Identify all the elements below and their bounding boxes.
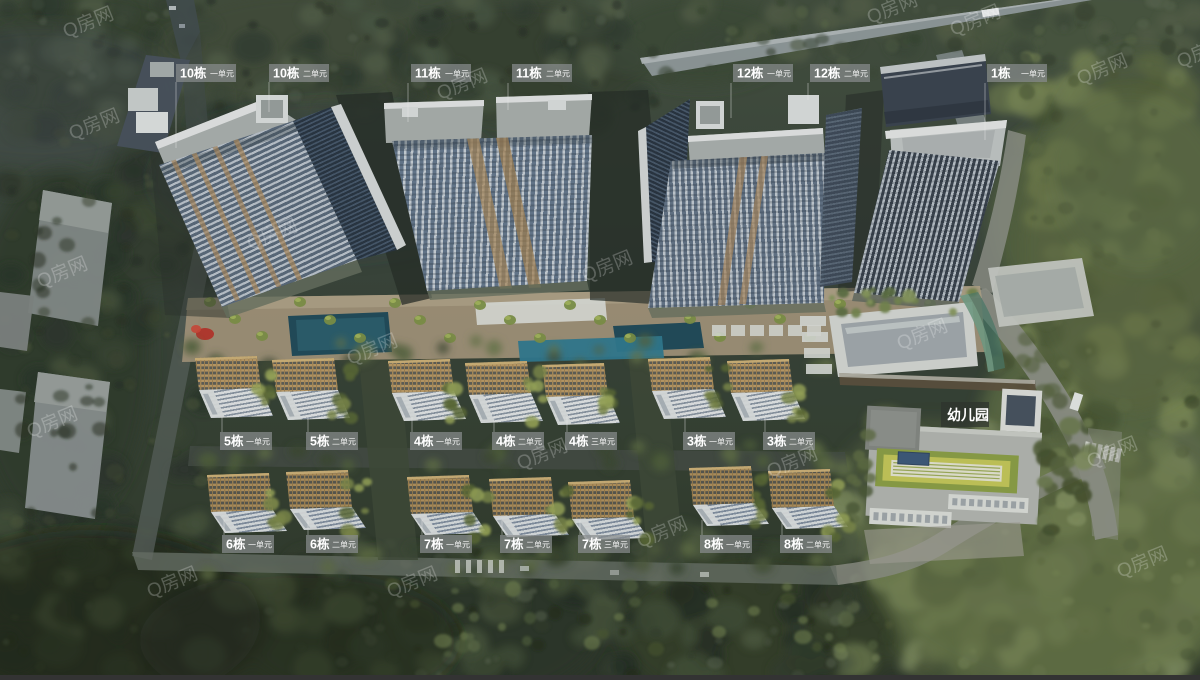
svg-text:二单元: 二单元 xyxy=(332,437,356,447)
svg-text:三单元: 三单元 xyxy=(591,437,615,447)
svg-text:10栋: 10栋 xyxy=(273,66,300,81)
svg-text:7栋: 7栋 xyxy=(424,537,444,552)
svg-text:二单元: 二单元 xyxy=(844,69,868,79)
svg-text:3栋: 3栋 xyxy=(767,434,787,449)
svg-text:5栋: 5栋 xyxy=(310,434,330,449)
svg-text:一单元: 一单元 xyxy=(248,540,272,550)
svg-text:12栋: 12栋 xyxy=(814,66,841,81)
svg-text:1栋: 1栋 xyxy=(991,66,1011,81)
svg-text:三单元: 三单元 xyxy=(604,540,628,550)
svg-text:7栋: 7栋 xyxy=(582,537,602,552)
svg-text:一单元: 一单元 xyxy=(709,437,733,447)
svg-text:一单元: 一单元 xyxy=(210,69,234,79)
svg-text:幼儿园: 幼儿园 xyxy=(947,407,989,423)
svg-text:6栋: 6栋 xyxy=(226,537,246,552)
svg-text:一单元: 一单元 xyxy=(767,69,791,79)
svg-text:二单元: 二单元 xyxy=(303,69,327,79)
svg-text:一单元: 一单元 xyxy=(726,540,750,550)
svg-text:二单元: 二单元 xyxy=(806,540,830,550)
svg-text:8栋: 8栋 xyxy=(704,537,724,552)
svg-text:一单元: 一单元 xyxy=(246,437,270,447)
svg-text:8栋: 8栋 xyxy=(784,537,804,552)
svg-text:7栋: 7栋 xyxy=(504,537,524,552)
svg-text:11栋: 11栋 xyxy=(516,66,542,81)
svg-text:10栋: 10栋 xyxy=(180,66,207,81)
svg-text:4栋: 4栋 xyxy=(414,434,434,449)
svg-text:5栋: 5栋 xyxy=(224,434,244,449)
svg-text:一单元: 一单元 xyxy=(436,437,460,447)
svg-text:6栋: 6栋 xyxy=(310,537,330,552)
svg-text:二单元: 二单元 xyxy=(332,540,356,550)
svg-text:二单元: 二单元 xyxy=(546,69,570,79)
svg-text:12栋: 12栋 xyxy=(737,66,764,81)
svg-text:4栋: 4栋 xyxy=(569,434,589,449)
svg-text:3栋: 3栋 xyxy=(687,434,707,449)
svg-text:二单元: 二单元 xyxy=(526,540,550,550)
svg-text:4栋: 4栋 xyxy=(496,434,516,449)
svg-text:一单元: 一单元 xyxy=(446,540,470,550)
svg-text:11栋: 11栋 xyxy=(415,66,441,81)
svg-text:一单元: 一单元 xyxy=(1021,69,1045,79)
